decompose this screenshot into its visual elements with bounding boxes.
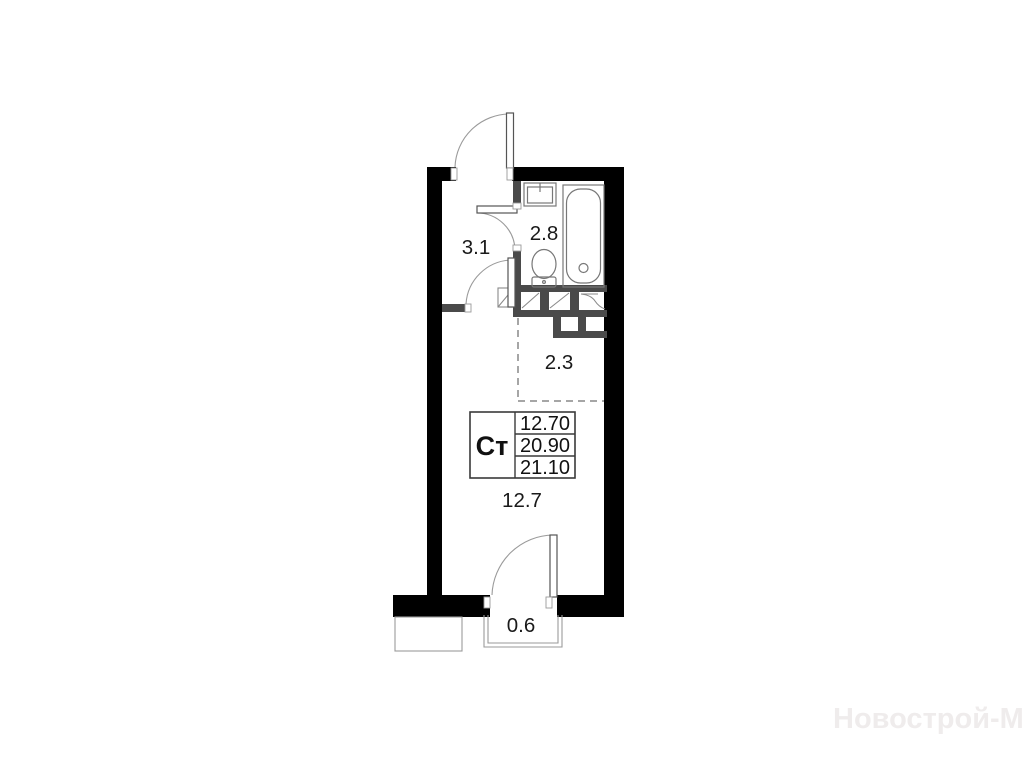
room-door-jamb [465,304,471,312]
entrance-door [451,113,514,180]
balcony-door-leaf [550,535,557,597]
balcony-jamb-left [484,597,490,608]
balcony-structures [395,615,562,651]
room-area-label: 12.7 [502,489,542,512]
balcony-jamb-right [546,597,552,608]
wall-bottom-left [393,595,490,617]
bathroom-door-leaf [477,206,517,213]
toilet-bowl [532,250,556,279]
room-door-arc [466,260,511,304]
toilet-button [543,281,546,284]
watermark-text: Новострой-М [833,703,1018,736]
wall-left [427,181,442,595]
wall-bottom-right [557,595,624,617]
wall-right [604,167,624,617]
info-table-value-1: 12.70 [520,413,570,435]
bathtub-icon [563,185,604,287]
balcony-door [484,535,557,608]
shaft-bar-bottom [553,331,607,338]
bathroom-jamb-top [513,203,521,209]
bathtub-drain [579,264,588,273]
unit-type-label: Ст [476,431,509,461]
info-table: Ст 12.70 20.90 21.10 [470,412,575,479]
niche-area-label: 2.3 [545,351,574,374]
sink-icon [524,183,556,206]
shaft-post-2 [570,292,579,310]
info-table-value-3: 21.10 [520,457,570,479]
shaft-trap-curve [581,294,605,309]
room-door [465,258,515,312]
hallway-wall-stub [442,304,465,312]
entrance-jamb-right [507,168,513,180]
bathtub-outer [563,185,604,287]
bathroom-jamb-bottom [513,245,521,251]
room-door-leaf [508,258,515,307]
shaft-diagonal-1 [522,293,539,308]
toilet-icon [532,250,556,288]
entrance-door-leaf [507,113,514,168]
entrance-jamb-left [451,168,457,180]
floorplan: Ст 12.70 20.90 21.10 3.1 2.8 2.3 12.7 0.… [0,0,1024,768]
exterior-walls [393,167,624,617]
bathroom-area-label: 2.8 [530,222,559,245]
entrance-door-arc [455,114,510,167]
shaft-diagonal-2 [550,293,569,308]
shaft-bar-top [513,285,607,292]
info-table-value-2: 20.90 [520,435,570,457]
hallway-area-label: 3.1 [462,236,491,259]
shaft-bar-mid [513,310,607,317]
shaft-post-1 [540,292,549,310]
balcony-area-label: 0.6 [507,614,536,637]
ledge-box [395,617,462,651]
bathtub-inner [567,189,601,283]
balcony-door-arc [492,535,553,595]
page-background: Ст 12.70 20.90 21.10 3.1 2.8 2.3 12.7 0.… [0,0,1024,768]
